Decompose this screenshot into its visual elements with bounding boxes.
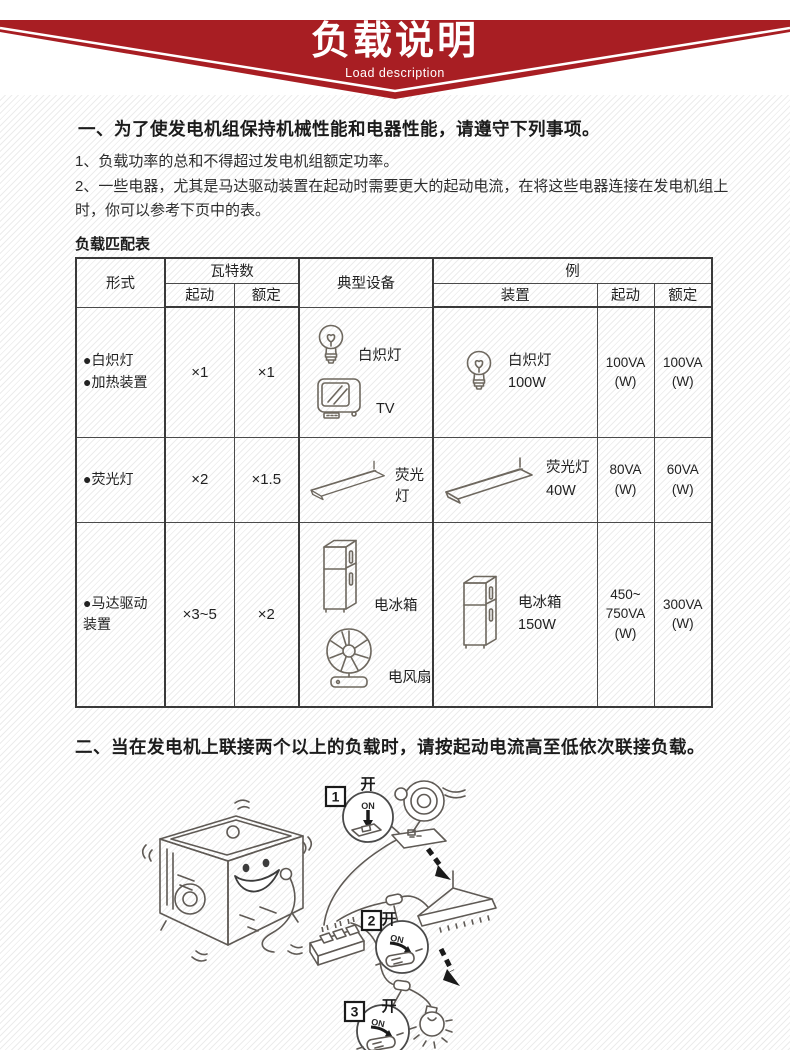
switch-on-label: 开	[381, 998, 396, 1015]
col-header-watts: 瓦特数	[165, 258, 299, 283]
main-power-cable	[262, 878, 295, 952]
fridge-icon	[460, 573, 504, 655]
col-header-ex-rated: 额定	[654, 283, 712, 307]
example-rated-va: 100VA(W)	[654, 307, 712, 437]
motion-marks	[143, 800, 312, 961]
inline-switch-3	[393, 980, 410, 991]
start-multiplier: ×2	[165, 437, 234, 522]
step-2-marker: 2 开	[362, 911, 397, 930]
table-row: ●马达驱动 装置 ×3~5 ×2	[76, 522, 712, 707]
example-rated-va: 300VA(W)	[654, 522, 712, 707]
switch-on-label: 开	[360, 776, 375, 793]
example-device-cell: 电冰箱 150W	[433, 522, 597, 707]
inline-switch-2	[385, 893, 403, 905]
table-caption: 负载匹配表	[75, 233, 150, 254]
rated-multiplier: ×1	[234, 307, 299, 437]
col-header-example: 例	[433, 258, 712, 283]
generator-connection-illustration: ON ON ON	[140, 775, 510, 1060]
example-start-va: 80VA(W)	[597, 437, 654, 522]
col-header-ex-start: 起动	[597, 283, 654, 307]
col-header-rated: 额定	[234, 283, 299, 307]
start-multiplier: ×1	[165, 307, 234, 437]
load-matching-table: 形式 瓦特数 典型设备 例 起动 额定 装置 起动 额定 ●白炽灯 ●加热装置 …	[75, 257, 713, 708]
section2-heading: 二、当在发电机上联接两个以上的负载时，请按起动电流高至低依次联接负载。	[75, 734, 755, 759]
typical-cell: 荧光灯	[299, 437, 433, 522]
fluorescent-icon	[440, 454, 540, 506]
table-row: ●荧光灯 ×2 ×1.5 荧光灯	[76, 437, 712, 522]
example-start-va: 100VA(W)	[597, 307, 654, 437]
switch-callout-2: ON	[376, 921, 428, 973]
col-header-start: 起动	[165, 283, 234, 307]
col-header-form: 形式	[76, 258, 165, 307]
fan-icon	[320, 625, 378, 691]
bulb-icon	[464, 349, 494, 395]
page-title: 负载说明	[0, 21, 790, 63]
cable-step2b	[401, 896, 428, 907]
example-device-cell: 白炽灯 100W	[433, 307, 597, 437]
page-subtitle: Load description	[0, 66, 790, 80]
instruction-list: 1、负载功率的总和不得超过发电机组额定功率。 2、一些电器，尤其是马达驱动装置在…	[75, 150, 737, 224]
bulb-icon	[316, 323, 346, 369]
desk-lamp	[392, 781, 465, 848]
rated-multiplier: ×1.5	[234, 437, 299, 522]
sequence-arrow-1	[428, 849, 451, 880]
switch-callout-1: ON	[343, 792, 393, 842]
section1-heading: 一、为了使发电机组保持机械性能和电器性能，请遵守下列事项。	[78, 116, 758, 141]
sequence-arrow-2	[441, 949, 460, 986]
instruction-item-2: 2、一些电器，尤其是马达驱动装置在起动时需要更大的起动电流，在将这些电器连接在发…	[75, 175, 737, 222]
form-cell: ●白炽灯 ●加热装置	[76, 307, 165, 437]
typical-cell: 白炽灯 TV	[299, 307, 433, 437]
generator-smiley-face	[235, 859, 279, 892]
tv-icon	[316, 377, 364, 421]
step-number: 1	[332, 789, 340, 805]
form-cell: ●荧光灯	[76, 437, 165, 522]
step-number: 2	[368, 913, 376, 929]
fluorescent-icon	[306, 454, 391, 506]
start-multiplier: ×3~5	[165, 522, 234, 707]
fridge-icon	[320, 537, 364, 619]
example-device-cell: 荧光灯 40W	[433, 437, 597, 522]
table-row: ●白炽灯 ●加热装置 ×1 ×1 白炽灯	[76, 307, 712, 437]
generator-illustration-svg: ON ON ON	[140, 775, 510, 1060]
typical-cell: 电冰箱 电风扇	[299, 522, 433, 707]
step-number: 3	[351, 1004, 359, 1020]
instruction-item-1: 1、负载功率的总和不得超过发电机组额定功率。	[75, 150, 737, 173]
switch-on-label: 开	[381, 911, 396, 928]
rated-multiplier: ×2	[234, 522, 299, 707]
banner-ribbon: 负载说明 Load description	[0, 0, 790, 105]
col-header-typical: 典型设备	[299, 258, 433, 307]
example-start-va: 450~750VA(W)	[597, 522, 654, 707]
col-header-device: 装置	[433, 283, 597, 307]
hanging-bulb	[410, 1006, 452, 1048]
form-cell: ●马达驱动 装置	[76, 522, 165, 707]
example-rated-va: 60VA(W)	[654, 437, 712, 522]
on-label: ON	[361, 801, 375, 811]
bottom-margin	[0, 1050, 790, 1064]
cable-step3b	[409, 989, 431, 1007]
ceiling-fluorescent	[418, 871, 496, 932]
manual-page: 负载说明 Load description 一、为了使发电机组保持机械性能和电器…	[0, 0, 790, 1064]
